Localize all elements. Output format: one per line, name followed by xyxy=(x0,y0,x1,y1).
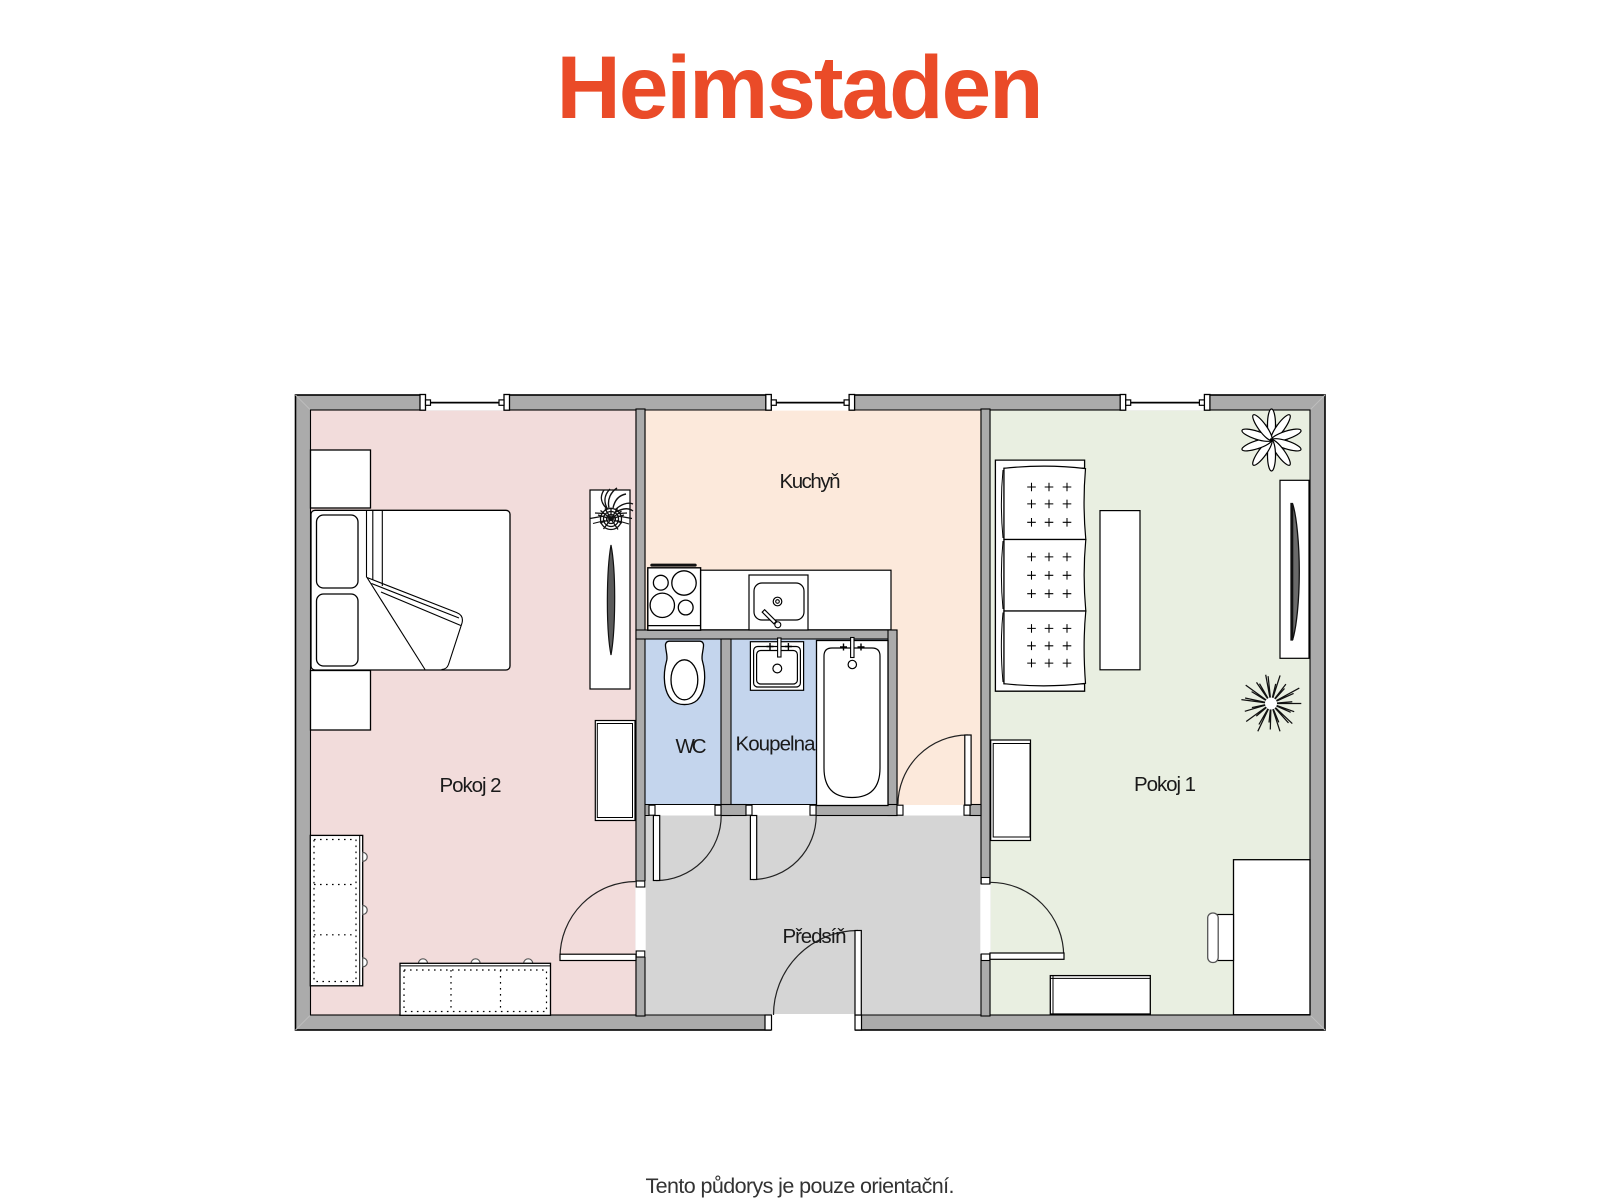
svg-text:Pokoj 1: Pokoj 1 xyxy=(1134,773,1196,796)
svg-text:Tento půdorys je pouze orienta: Tento půdorys je pouze orientační. xyxy=(646,1174,955,1198)
svg-text:Kuchyň: Kuchyň xyxy=(780,470,841,493)
svg-text:Předsíň: Předsíň xyxy=(783,925,847,948)
svg-text:Pokoj 2: Pokoj 2 xyxy=(440,774,502,797)
svg-text:Heimstaden: Heimstaden xyxy=(557,37,1044,137)
svg-text:WC: WC xyxy=(676,735,707,758)
svg-text:Koupelna: Koupelna xyxy=(736,733,817,756)
